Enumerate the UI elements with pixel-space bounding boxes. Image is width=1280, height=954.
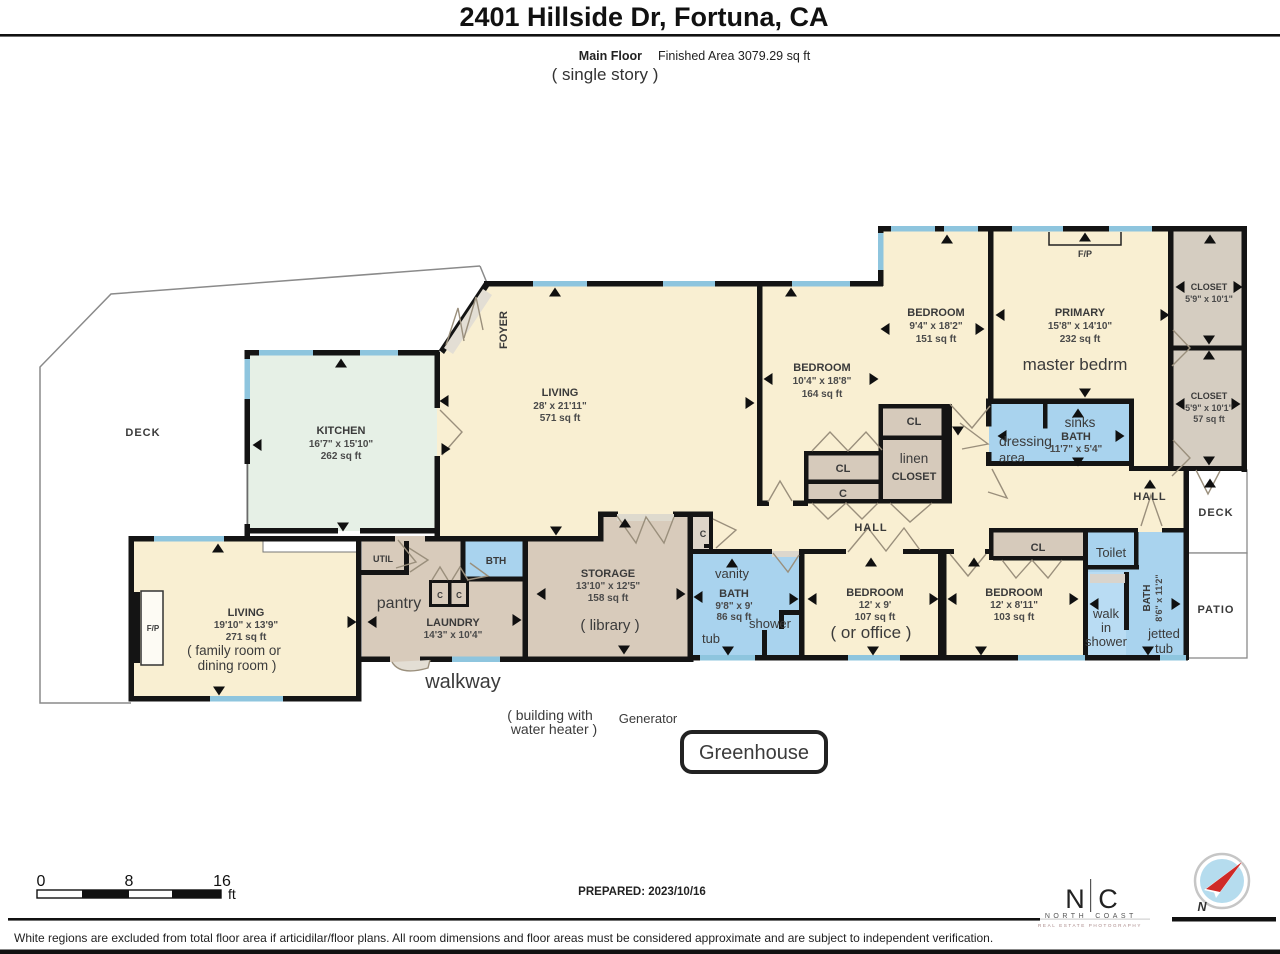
svg-text:151 sq ft: 151 sq ft <box>916 334 957 345</box>
svg-text:DECK: DECK <box>125 427 160 439</box>
svg-text:ft: ft <box>228 886 236 902</box>
svg-text:10'4" x 18'8": 10'4" x 18'8" <box>793 376 852 387</box>
svg-text:8: 8 <box>125 873 134 890</box>
svg-text:PATIO: PATIO <box>1198 604 1235 616</box>
svg-text:HALL: HALL <box>1133 491 1166 503</box>
svg-text:( library ): ( library ) <box>580 617 639 634</box>
svg-text:5'9" x 10'1": 5'9" x 10'1" <box>1185 294 1233 304</box>
svg-text:shower: shower <box>749 616 792 631</box>
svg-text:158 sq ft: 158 sq ft <box>588 593 629 604</box>
svg-text:COAST: COAST <box>1095 913 1137 920</box>
svg-text:HALL: HALL <box>854 522 887 534</box>
svg-text:C: C <box>700 529 707 539</box>
svg-text:White regions are excluded fro: White regions are excluded from total fl… <box>14 931 993 945</box>
svg-text:walkway: walkway <box>424 671 501 693</box>
svg-text:tub: tub <box>702 631 720 646</box>
svg-text:12' x 8'11": 12' x 8'11" <box>990 600 1038 611</box>
svg-text:CL: CL <box>836 463 851 475</box>
svg-text:Greenhouse: Greenhouse <box>699 742 809 764</box>
svg-text:16'7" x 15'10": 16'7" x 15'10" <box>309 439 374 450</box>
svg-text:PRIMARY: PRIMARY <box>1055 307 1106 319</box>
svg-text:CLOSET: CLOSET <box>892 471 937 483</box>
svg-text:11'7" x 5'4": 11'7" x 5'4" <box>1050 444 1103 455</box>
svg-text:dining room ): dining room ) <box>198 658 277 673</box>
svg-text:UTIL: UTIL <box>373 554 393 564</box>
svg-text:master bedrm: master bedrm <box>1023 355 1128 374</box>
svg-text:CLOSET: CLOSET <box>1191 391 1228 401</box>
svg-text:13'10" x 12'5": 13'10" x 12'5" <box>576 581 641 592</box>
svg-text:9'8" x 9': 9'8" x 9' <box>715 601 752 612</box>
svg-text:pantry: pantry <box>377 595 421 612</box>
svg-text:271 sq ft: 271 sq ft <box>226 632 267 643</box>
svg-text:28' x 21'11": 28' x 21'11" <box>533 401 587 412</box>
svg-text:DECK: DECK <box>1198 507 1233 519</box>
svg-text:BEDROOM: BEDROOM <box>985 587 1042 599</box>
svg-text:( family room or: ( family room or <box>187 643 281 658</box>
svg-text:571 sq ft: 571 sq ft <box>540 413 581 424</box>
svg-text:BEDROOM: BEDROOM <box>907 307 964 319</box>
svg-text:2401 Hillside Dr, Fortuna, CA: 2401 Hillside Dr, Fortuna, CA <box>459 2 828 32</box>
svg-text:dressing: dressing <box>999 433 1052 449</box>
svg-text:Toilet: Toilet <box>1096 545 1127 560</box>
svg-text:Generator: Generator <box>619 711 678 726</box>
svg-text:57 sq ft: 57 sq ft <box>1193 414 1225 424</box>
svg-text:tub: tub <box>1155 641 1173 656</box>
svg-text:water heater ): water heater ) <box>510 721 597 737</box>
svg-text:5'9" x 10'1": 5'9" x 10'1" <box>1185 403 1233 413</box>
svg-text:164 sq ft: 164 sq ft <box>802 389 843 400</box>
svg-text:REAL ESTATE PHOTOGRAPHY: REAL ESTATE PHOTOGRAPHY <box>1038 923 1142 928</box>
svg-text:BATH: BATH <box>1142 584 1153 611</box>
svg-text:NORTH: NORTH <box>1045 913 1087 920</box>
svg-text:0: 0 <box>37 873 46 890</box>
svg-text:C: C <box>437 591 443 600</box>
svg-text:262 sq ft: 262 sq ft <box>321 451 362 462</box>
svg-text:CL: CL <box>907 416 922 428</box>
svg-text:linen: linen <box>900 451 929 466</box>
svg-text:walk: walk <box>1092 606 1120 621</box>
svg-text:107 sq ft: 107 sq ft <box>855 612 896 623</box>
svg-text:CL: CL <box>1031 542 1046 554</box>
svg-text:PREPARED: 2023/10/16: PREPARED: 2023/10/16 <box>578 886 706 898</box>
svg-text:Main Floor: Main Floor <box>579 49 642 63</box>
svg-text:N: N <box>1065 884 1085 914</box>
svg-text:C: C <box>456 591 462 600</box>
svg-text:BATH: BATH <box>719 588 749 600</box>
svg-text:C: C <box>1098 884 1118 914</box>
svg-text:Finished Area 3079.29 sq ft: Finished Area 3079.29 sq ft <box>658 49 811 63</box>
svg-text:FOYER: FOYER <box>498 311 510 349</box>
svg-text:in: in <box>1101 620 1111 635</box>
svg-text:9'4" x 18'2": 9'4" x 18'2" <box>909 321 962 332</box>
svg-text:F/P: F/P <box>1078 249 1092 259</box>
svg-text:( single story ): ( single story ) <box>552 65 659 84</box>
svg-text:C: C <box>839 488 847 500</box>
svg-text:BTH: BTH <box>486 556 507 567</box>
svg-text:19'10" x 13'9": 19'10" x 13'9" <box>214 620 279 631</box>
svg-text:15'8" x 14'10": 15'8" x 14'10" <box>1048 321 1113 332</box>
svg-text:shower: shower <box>1085 634 1128 649</box>
svg-text:12' x 9': 12' x 9' <box>859 600 892 611</box>
svg-text:STORAGE: STORAGE <box>581 568 635 580</box>
svg-text:103 sq ft: 103 sq ft <box>994 612 1035 623</box>
svg-text:BEDROOM: BEDROOM <box>793 362 850 374</box>
svg-text:area: area <box>999 450 1026 465</box>
svg-text:( or office ): ( or office ) <box>831 623 912 642</box>
svg-text:8'6" x 11'2": 8'6" x 11'2" <box>1154 574 1164 621</box>
svg-text:KITCHEN: KITCHEN <box>317 425 366 437</box>
svg-text:LIVING: LIVING <box>542 387 579 399</box>
svg-text:vanity: vanity <box>715 566 749 581</box>
svg-text:14'3" x 10'4": 14'3" x 10'4" <box>424 630 483 641</box>
svg-text:BEDROOM: BEDROOM <box>846 587 903 599</box>
svg-text:BATH: BATH <box>1061 431 1091 443</box>
svg-text:232 sq ft: 232 sq ft <box>1060 334 1101 345</box>
svg-text:jetted: jetted <box>1147 626 1180 641</box>
svg-text:LAUNDRY: LAUNDRY <box>426 617 480 629</box>
svg-text:CLOSET: CLOSET <box>1191 282 1228 292</box>
svg-text:F/P: F/P <box>147 624 160 633</box>
svg-text:LIVING: LIVING <box>228 607 265 619</box>
svg-text:86 sq ft: 86 sq ft <box>716 612 752 623</box>
svg-text:N: N <box>1197 900 1207 914</box>
svg-text:sinks: sinks <box>1065 415 1096 430</box>
